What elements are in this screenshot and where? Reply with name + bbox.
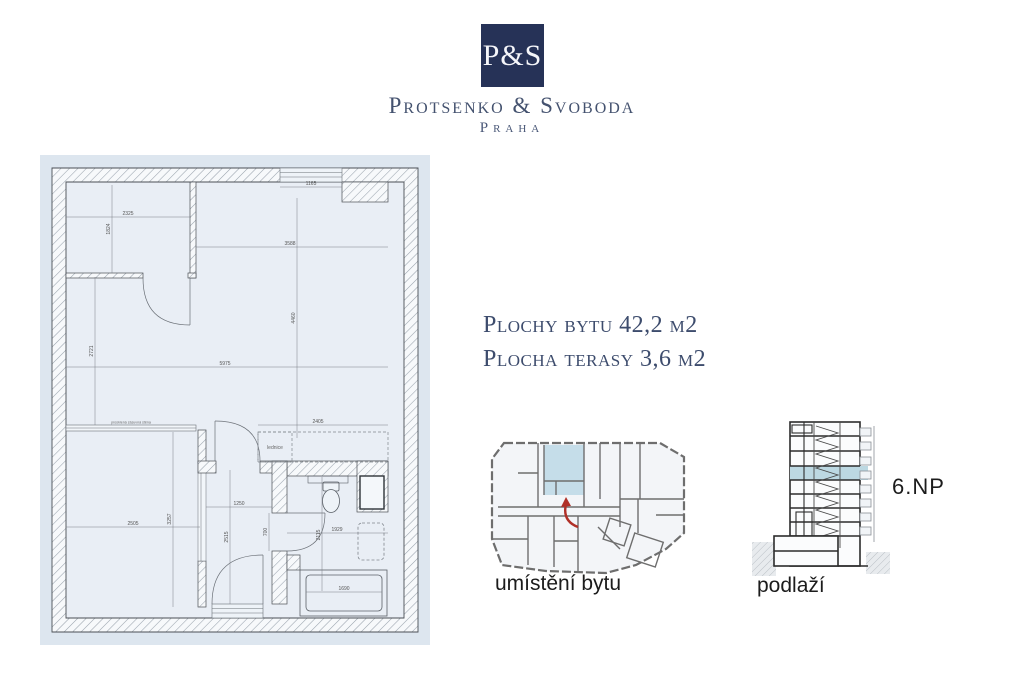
installation-shaft <box>357 461 388 512</box>
toilet-icon <box>323 482 340 513</box>
svg-text:2505: 2505 <box>127 521 138 527</box>
location-caption: umístění bytu <box>495 572 621 596</box>
svg-text:1929: 1929 <box>331 527 342 533</box>
bedroom-wall <box>198 430 206 607</box>
fridge-label: lednice <box>267 445 283 451</box>
building-outline <box>492 443 684 573</box>
svg-text:1690: 1690 <box>338 586 349 592</box>
svg-text:700: 700 <box>263 528 269 537</box>
svg-text:5975: 5975 <box>219 361 230 367</box>
balconies <box>860 426 874 542</box>
brochure-page: { "brand": { "logo_text": "P&S", "name":… <box>0 0 1024 683</box>
terrace-area-line: Plocha terasy 3,6 m2 <box>483 342 706 376</box>
svg-text:2405: 2405 <box>312 419 323 425</box>
location-miniplan-drawing <box>488 437 690 578</box>
brand-logo-monogram: P&S <box>483 39 543 73</box>
floorplan-panel: prosklená zásuvná stěna <box>40 155 430 645</box>
floor-number: 6.NP <box>892 474 945 500</box>
svg-text:2325: 2325 <box>122 211 133 217</box>
ground-left <box>752 542 776 576</box>
svg-text:4460: 4460 <box>291 312 297 323</box>
svg-text:1250: 1250 <box>233 501 244 507</box>
apartment-area-line: Plochy bytu 42,2 m2 <box>483 308 706 342</box>
brand-name: Protsenko & Svoboda <box>0 93 1024 119</box>
ground-right <box>866 552 890 574</box>
location-miniplan <box>488 437 690 583</box>
svg-text:3257: 3257 <box>167 513 173 524</box>
svg-text:3588: 3588 <box>284 241 295 247</box>
floorplan-drawing: prosklená zásuvná stěna <box>40 155 430 645</box>
svg-text:2721: 2721 <box>89 345 95 356</box>
svg-text:1165: 1165 <box>306 181 317 187</box>
bottom-french-window <box>212 604 263 618</box>
svg-text:2115: 2115 <box>316 529 322 540</box>
brand-city: Praha <box>0 120 1024 137</box>
glass-wall-label: prosklená zásuvná stěna <box>111 421 151 425</box>
apartment-floor <box>66 182 404 618</box>
svg-text:2515: 2515 <box>224 531 230 542</box>
top-window <box>280 168 342 182</box>
highlighted-unit <box>544 445 584 495</box>
area-summary: Plochy bytu 42,2 m2 Plocha terasy 3,6 m2 <box>483 308 706 376</box>
corner-wall <box>342 182 388 202</box>
brand-logo: P&S <box>481 24 544 87</box>
svg-text:1824: 1824 <box>106 223 112 234</box>
building-section <box>752 416 892 591</box>
building-section-drawing <box>752 416 892 586</box>
section-caption: podlaží <box>757 574 825 598</box>
